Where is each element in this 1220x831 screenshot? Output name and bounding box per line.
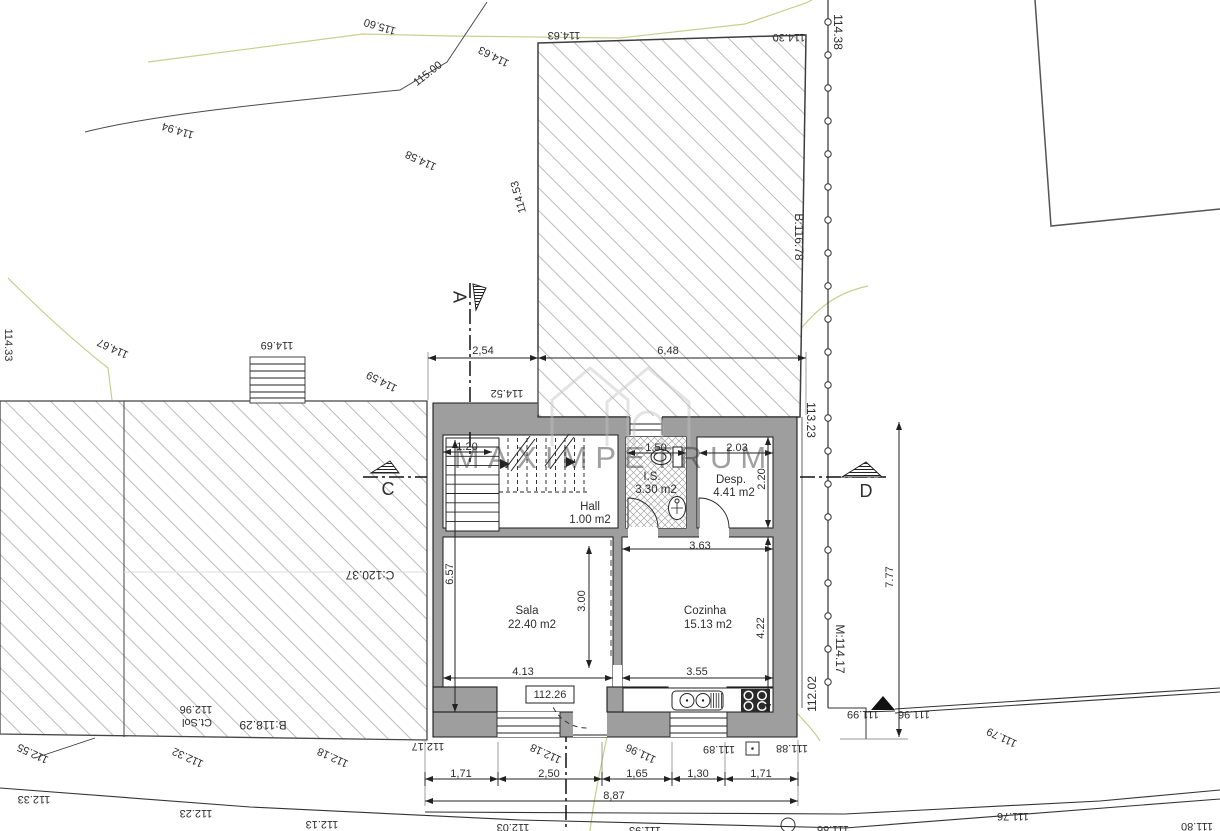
elevation-label: M:114.17 xyxy=(833,624,847,673)
elevation-label: 111.96 xyxy=(624,741,658,765)
dimension-label: 6,48 xyxy=(657,345,678,357)
room-name-label: Sala xyxy=(515,605,539,617)
dimension-label: 2,54 xyxy=(472,345,493,357)
boundary-fence xyxy=(802,0,895,739)
room-area-label: 3.30 m2 xyxy=(635,484,677,496)
sala-cozinha-opening xyxy=(613,665,622,687)
elevation-label: 111.76 xyxy=(997,810,1029,822)
floor-plan-canvas: 112.26 MAXIMPETRUM 115.60115.00114.94114… xyxy=(0,0,1220,831)
manhole-symbol xyxy=(781,818,795,831)
elevation-label: 111.88 xyxy=(776,742,808,754)
elevation-label: 114.53 xyxy=(509,180,529,215)
elevation-label: 112.03 xyxy=(497,821,530,831)
entry-door-opening xyxy=(573,686,607,737)
elevation-label: 114.33 xyxy=(2,329,14,362)
fence-post xyxy=(825,118,831,124)
room-name-label: Desp. xyxy=(716,474,746,486)
elevation-label: 112.18 xyxy=(529,741,564,766)
fence-post xyxy=(825,217,831,223)
fence-post xyxy=(825,52,831,58)
fence-post xyxy=(825,349,831,355)
elevation-label: 112.23 xyxy=(180,807,213,819)
elevation-label: 114.67 xyxy=(96,336,131,361)
elevation-label: 114.38 xyxy=(831,14,845,50)
elevation-label: 114.30 xyxy=(773,31,806,43)
floor-level-value: 112.26 xyxy=(534,689,567,701)
dimension-label: 1.20 xyxy=(456,441,477,453)
elevation-label: 111.89 xyxy=(703,743,735,755)
dimension-label: 2.20 xyxy=(756,468,768,489)
parcel-outline-topright xyxy=(1035,0,1220,226)
dimension-label: 1,71 xyxy=(450,768,471,780)
elevation-label: 112.96 xyxy=(180,703,213,715)
fence-post xyxy=(825,85,831,91)
desp-door-opening xyxy=(699,527,729,538)
dimension-label: 4.22 xyxy=(755,617,767,638)
elevation-label: 111.79 xyxy=(985,725,1019,749)
elevation-label: 111.80 xyxy=(1181,820,1213,831)
section-letter: A xyxy=(449,291,469,303)
elevation-label: 112.33 xyxy=(18,793,51,805)
section-flag-a xyxy=(473,284,486,310)
site-plan-drawing: 112.26 MAXIMPETRUM 115.60115.00114.94114… xyxy=(0,0,1220,831)
room-name-label: Hall xyxy=(580,501,600,513)
elevation-label: 112.55 xyxy=(16,741,51,766)
fence-post xyxy=(825,481,831,487)
kitchen-fixtures xyxy=(623,688,773,712)
fence-post xyxy=(825,679,831,685)
dimension-label: 3.55 xyxy=(686,666,707,678)
elevation-label: 114.63 xyxy=(548,29,581,41)
elevation-label: 111.93 xyxy=(629,824,661,831)
elevation-label: 114.59 xyxy=(365,368,400,394)
elevation-label: 115.00 xyxy=(411,59,444,89)
fence-post xyxy=(825,613,831,619)
survey-box-dot xyxy=(751,747,754,750)
section-letter: D xyxy=(860,481,873,501)
elevation-label: 112.32 xyxy=(171,745,206,770)
dimension-label: 2.03 xyxy=(726,442,747,454)
fence-post xyxy=(825,184,831,190)
elevation-label: C:120.37 xyxy=(345,568,394,582)
elevation-label: 112.17 xyxy=(412,740,445,752)
dimension-label: 1,30 xyxy=(687,768,708,780)
elevation-label: 111.86 xyxy=(817,823,849,831)
dimension-label: 7.77 xyxy=(884,566,896,587)
dimension-label: 8,87 xyxy=(603,790,624,802)
fence-post xyxy=(825,151,831,157)
room-name-label: I.S. xyxy=(643,471,660,483)
fence-post xyxy=(825,250,831,256)
dimension-label: 6.57 xyxy=(444,563,456,584)
fence-post xyxy=(825,547,831,553)
elevation-label: 114.94 xyxy=(161,120,196,141)
room-area-label: 4.41 m2 xyxy=(713,487,755,499)
is-door-opening xyxy=(628,527,658,538)
fence-post xyxy=(825,316,831,322)
dimension-label: 1,65 xyxy=(626,768,647,780)
elevation-label: B:118.29 xyxy=(239,718,286,732)
elevation-label: 112.02 xyxy=(805,676,819,712)
elevation-label: B:116.78 xyxy=(792,213,806,260)
wall-pier xyxy=(433,687,497,712)
fence-post xyxy=(825,19,831,25)
elevation-label: 114.69 xyxy=(261,339,294,351)
section-letter: C xyxy=(382,479,395,499)
fence-post xyxy=(825,382,831,388)
survey-triangle-marker xyxy=(871,696,895,710)
elevation-label: 111.96 xyxy=(898,708,930,720)
elevation-label: 114.63 xyxy=(477,43,512,69)
dimension-label: 1,71 xyxy=(750,768,771,780)
fence-post xyxy=(825,514,831,520)
elevation-label: 114.52 xyxy=(491,387,524,399)
fence-post xyxy=(825,283,831,289)
elevation-label: 113.23 xyxy=(804,402,818,438)
room-area-label: 22.40 m2 xyxy=(508,619,556,631)
room-area-label: 1.00 m2 xyxy=(569,514,611,526)
dimension-label: 2,50 xyxy=(538,768,559,780)
dimension-label: 3.00 xyxy=(576,590,588,611)
room-name-label: Cozinha xyxy=(684,605,727,617)
dimension-label: 4.13 xyxy=(512,666,533,678)
room-area-label: 15.13 m2 xyxy=(684,619,732,631)
elevation-label: 114.58 xyxy=(404,148,439,173)
elevation-label: 115.60 xyxy=(363,16,398,37)
elevation-label: 111.99 xyxy=(847,708,879,720)
fence-posts xyxy=(825,19,831,685)
fence-post xyxy=(825,580,831,586)
garden-steps xyxy=(250,357,305,403)
elevation-label: Ct.Sol xyxy=(182,716,212,728)
section-flag-d xyxy=(842,462,882,477)
elevation-label: 112.13 xyxy=(306,818,339,830)
elevation-label: 112.18 xyxy=(316,745,351,770)
fence-post xyxy=(825,646,831,652)
fence-post xyxy=(825,415,831,421)
dimension-label: 3.63 xyxy=(689,540,710,552)
dimension-label: 1.50 xyxy=(645,442,666,454)
fence-post xyxy=(825,448,831,454)
neighbour-building xyxy=(538,35,806,417)
